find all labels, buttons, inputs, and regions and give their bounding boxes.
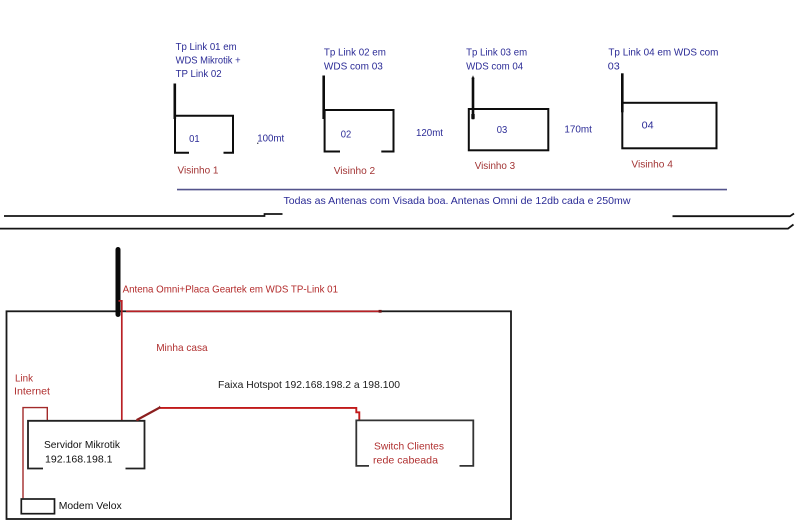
svg-text:03: 03 [497,124,508,136]
svg-text:TP Link 02: TP Link 02 [176,68,222,80]
svg-text:Switch Clientes: Switch Clientes [374,441,444,453]
svg-text:Todas as Antenas com Visada bo: Todas as Antenas com Visada boa. Antenas… [284,195,631,207]
svg-text:Visinho 3: Visinho 3 [475,160,516,172]
svg-text:03: 03 [608,60,620,72]
svg-text:Tp Link 01 em: Tp Link 01 em [176,41,237,53]
svg-text:Servidor Mikrotik: Servidor Mikrotik [44,439,121,451]
svg-text:01: 01 [189,133,200,145]
svg-text:Link: Link [15,373,34,385]
svg-text:WDS com 03: WDS com 03 [324,60,383,72]
svg-text:04: 04 [642,119,654,131]
svg-text:02: 02 [341,129,352,141]
svg-text:Visinho 4: Visinho 4 [631,159,673,171]
svg-text:Tp Link 02 em: Tp Link 02 em [324,47,386,59]
svg-text:Minha casa: Minha casa [156,342,208,354]
svg-text:Modem Velox: Modem Velox [59,500,123,512]
svg-text:100mt: 100mt [257,132,284,144]
svg-text:Visinho 2: Visinho 2 [334,165,376,177]
svg-text:Visinho 1: Visinho 1 [178,165,219,177]
svg-text:WDS Mikrotik +: WDS Mikrotik + [176,55,241,67]
svg-text:Internet: Internet [14,386,50,398]
svg-text:Tp Link 03 em: Tp Link 03 em [466,47,527,59]
svg-text:192.168.198.1: 192.168.198.1 [45,453,113,465]
svg-text:Antena Omni+Placa Geartek em W: Antena Omni+Placa Geartek em WDS TP-Link… [123,283,339,295]
svg-text:170mt: 170mt [564,123,592,135]
svg-text:Faixa Hotspot 192.168.198.2 a: Faixa Hotspot 192.168.198.2 a 198.100 [218,379,400,391]
svg-text:120mt: 120mt [416,127,443,139]
svg-text:rede cabeada: rede cabeada [373,455,438,467]
svg-text:WDS com 04: WDS com 04 [466,60,523,72]
svg-text:Tp Link 04 em WDS com: Tp Link 04 em WDS com [608,47,718,59]
